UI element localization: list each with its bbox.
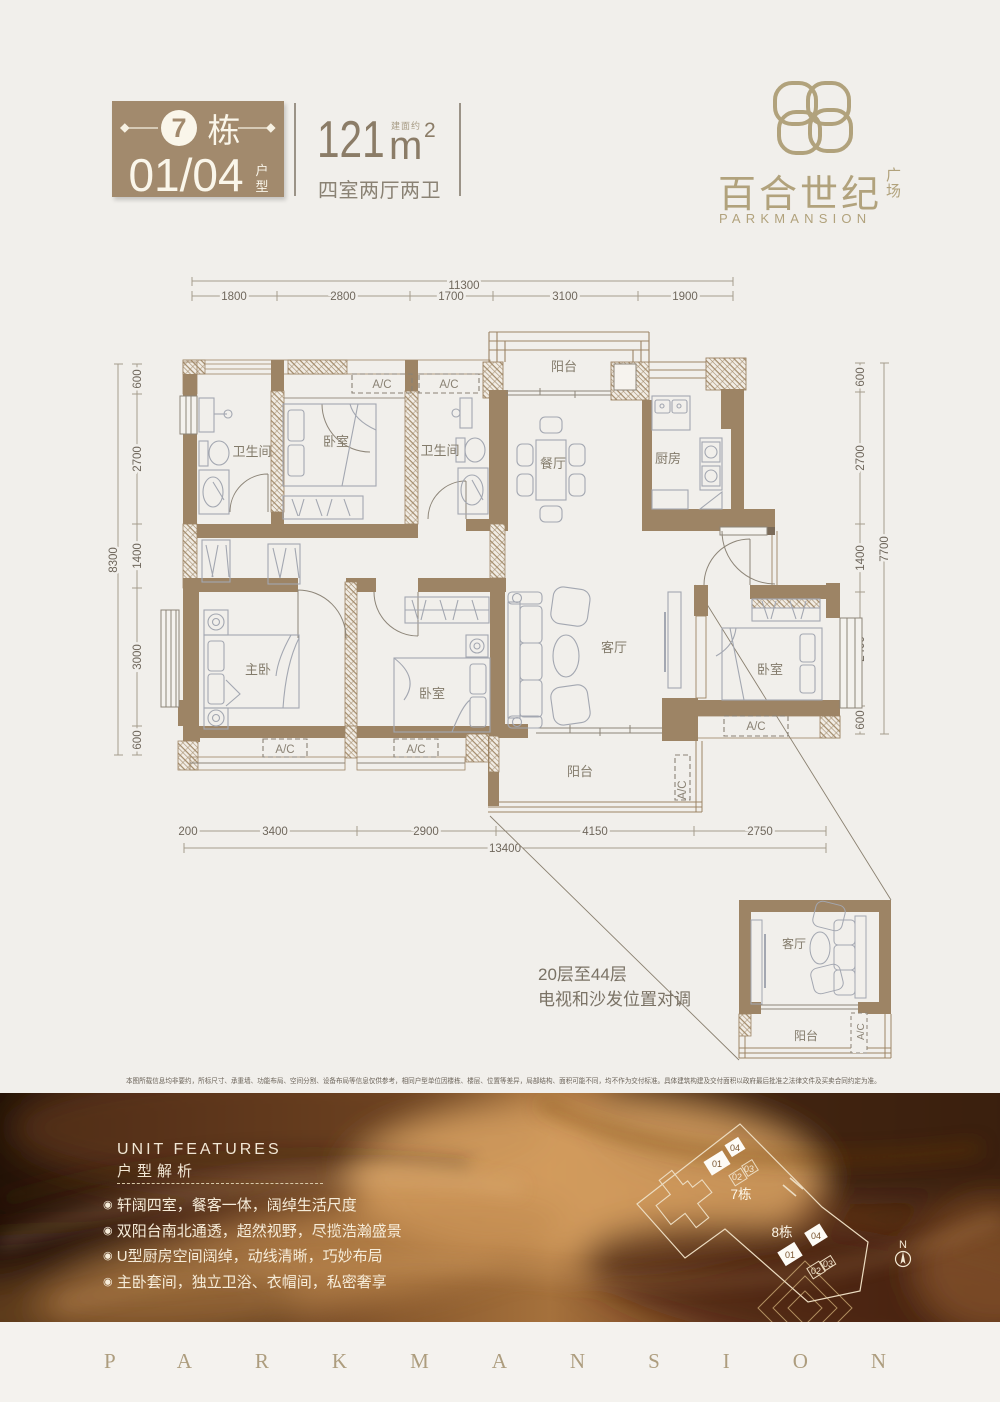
svg-text:03: 03	[823, 1259, 833, 1269]
svg-text:600: 600	[132, 730, 144, 749]
svg-text:厨房: 厨房	[655, 451, 681, 466]
svg-text:主卧: 主卧	[245, 662, 271, 677]
svg-text:卧室: 卧室	[323, 434, 349, 449]
svg-text:200: 200	[178, 826, 197, 838]
svg-text:阳台: 阳台	[794, 1028, 818, 1043]
svg-text:卧室: 卧室	[757, 662, 783, 677]
svg-text:卧室: 卧室	[419, 686, 445, 701]
svg-text:600: 600	[132, 369, 144, 388]
svg-text:1900: 1900	[672, 291, 698, 303]
svg-text:600: 600	[855, 367, 867, 386]
svg-text:8栋: 8栋	[771, 1225, 792, 1240]
svg-text:阳台: 阳台	[567, 764, 593, 779]
svg-text:2800: 2800	[330, 291, 356, 303]
svg-text:2900: 2900	[413, 826, 439, 838]
svg-text:7栋: 7栋	[730, 1187, 751, 1202]
svg-text:7700: 7700	[879, 536, 891, 562]
svg-text:户: 户	[255, 163, 268, 178]
svg-text:阳台: 阳台	[551, 359, 577, 374]
svg-text:客厅: 客厅	[601, 640, 627, 655]
svg-text:20层至44层: 20层至44层	[538, 965, 627, 984]
svg-text:卫生间: 卫生间	[420, 443, 459, 458]
svg-text:型: 型	[255, 179, 268, 194]
svg-text:3000: 3000	[132, 644, 144, 670]
svg-text:卫生间: 卫生间	[232, 444, 271, 459]
svg-text:1700: 1700	[438, 291, 464, 303]
svg-text:电视和沙发位置对调: 电视和沙发位置对调	[538, 990, 691, 1009]
svg-text:13400: 13400	[489, 843, 521, 855]
svg-text:A/C: A/C	[856, 1023, 867, 1040]
svg-text:2700: 2700	[132, 446, 144, 472]
svg-text:2750: 2750	[747, 826, 773, 838]
svg-text:01: 01	[712, 1159, 722, 1169]
svg-text:A/C: A/C	[372, 379, 391, 391]
svg-text:A/C: A/C	[677, 780, 689, 799]
svg-text:3100: 3100	[552, 291, 578, 303]
svg-text:600: 600	[855, 710, 867, 729]
svg-text:客厅: 客厅	[782, 936, 806, 951]
svg-text:2700: 2700	[855, 445, 867, 471]
svg-text:1400: 1400	[855, 545, 867, 571]
svg-text:7: 7	[171, 113, 186, 143]
svg-text:1800: 1800	[221, 291, 247, 303]
svg-text:01: 01	[785, 1250, 795, 1260]
svg-text:02: 02	[732, 1172, 742, 1182]
svg-text:1400: 1400	[132, 543, 144, 569]
svg-text:A/C: A/C	[746, 721, 765, 733]
svg-text:4150: 4150	[582, 826, 608, 838]
svg-text:A/C: A/C	[275, 744, 294, 756]
svg-text:03: 03	[744, 1164, 754, 1174]
svg-text:02: 02	[811, 1266, 821, 1276]
svg-text:8300: 8300	[108, 547, 120, 573]
svg-text:A/C: A/C	[406, 744, 425, 756]
svg-text:栋: 栋	[208, 112, 241, 149]
svg-text:N: N	[899, 1239, 907, 1251]
svg-text:餐厅: 餐厅	[540, 456, 566, 471]
svg-text:04: 04	[811, 1231, 821, 1241]
svg-text:A/C: A/C	[439, 379, 458, 391]
svg-text:01/04: 01/04	[128, 149, 243, 197]
svg-text:04: 04	[730, 1143, 740, 1153]
svg-text:3400: 3400	[262, 826, 288, 838]
